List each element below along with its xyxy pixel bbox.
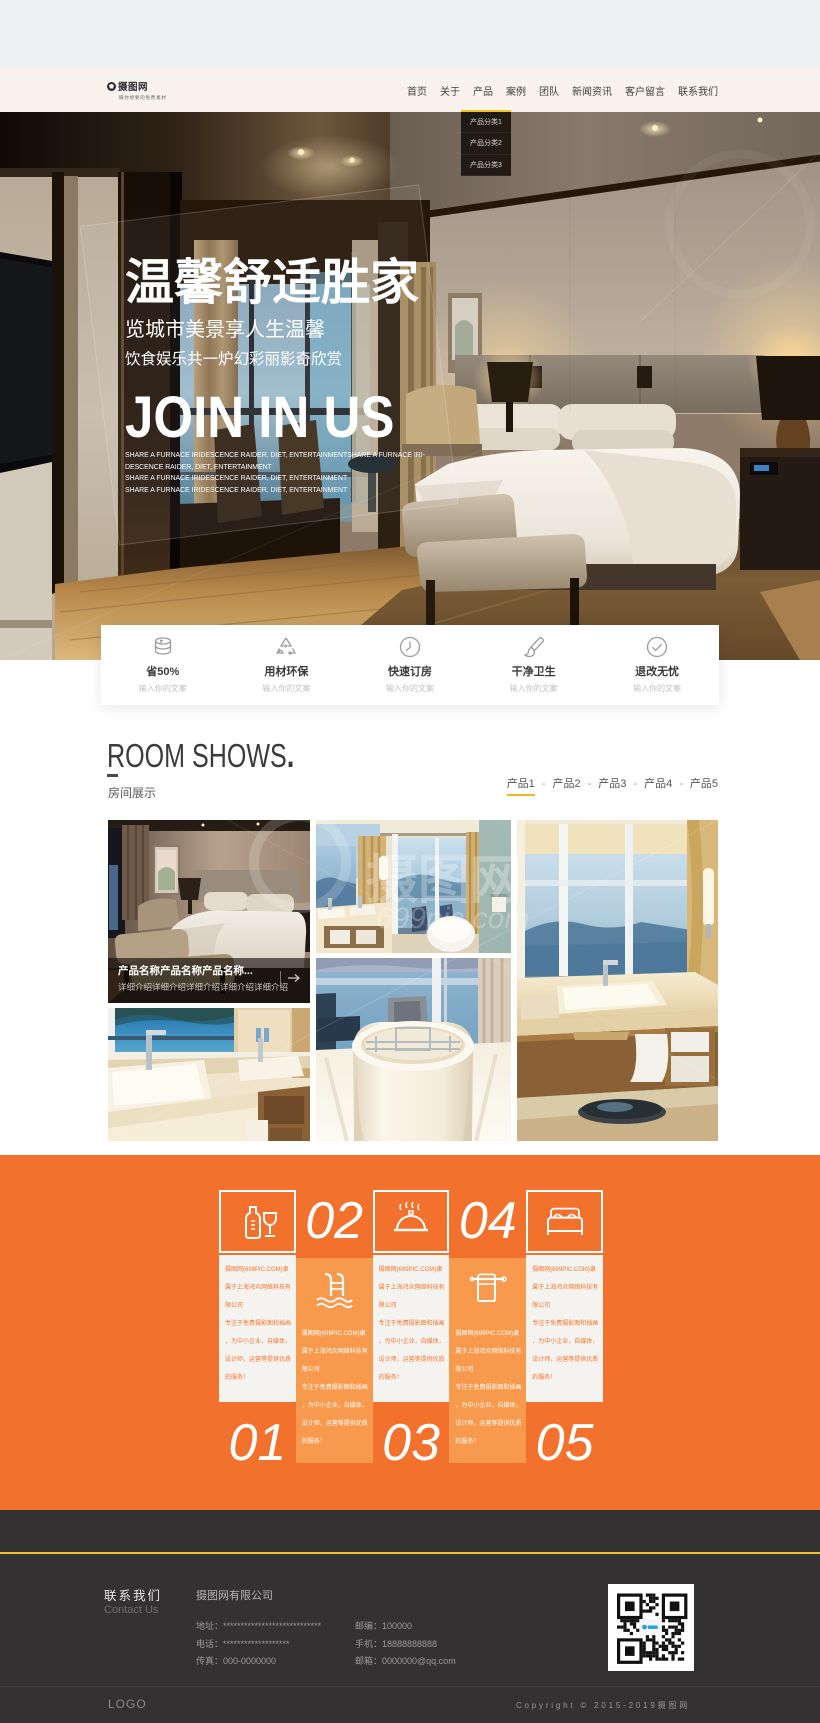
svg-text:产品名称产品名称产品名称...: 产品名称产品名称产品名称... (118, 964, 253, 977)
svg-text:详细介绍详细介绍详细介绍详细介绍详细介绍: 详细介绍详细介绍详细介绍详细介绍详细介绍 (118, 982, 288, 992)
